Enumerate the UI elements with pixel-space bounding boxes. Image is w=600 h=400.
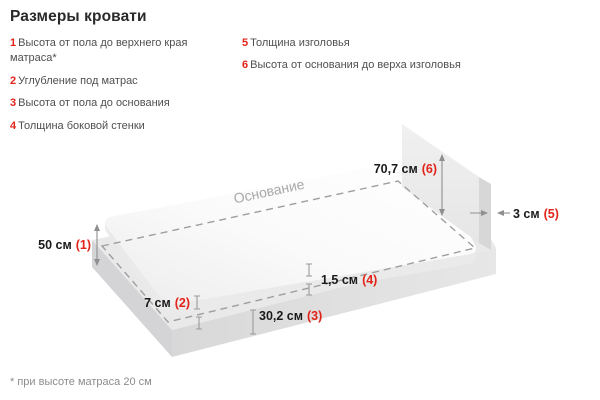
dim-label-5: 3 см(5): [513, 207, 559, 221]
footnote: * при высоте матраса 20 см: [10, 376, 152, 388]
dim-label-1: 50 см(1): [38, 238, 91, 252]
dim-label-6: 70,7 см(6): [374, 162, 437, 176]
dim-label-3: 30,2 см(3): [259, 309, 322, 323]
dim-label-4: 1,5 см(4): [321, 273, 377, 287]
bed-diagram: Основание 50 см(1) 7 см(2) 30,2 см(3) 1,…: [0, 0, 600, 400]
dim-label-2: 7 см(2): [144, 296, 190, 310]
